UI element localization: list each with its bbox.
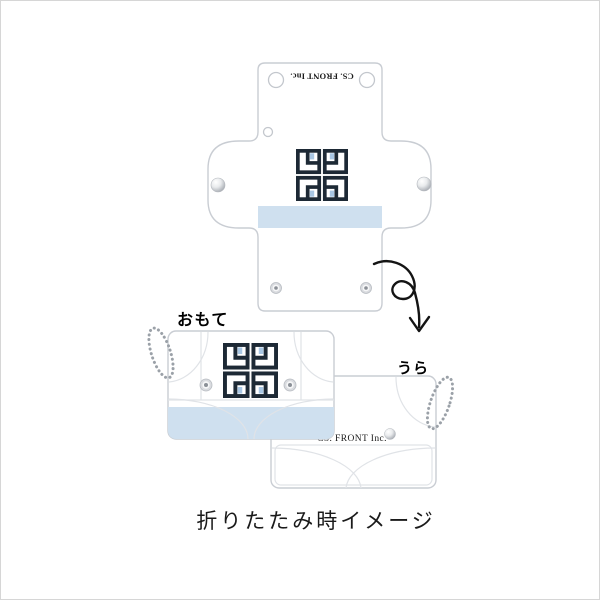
- back-label: うら: [397, 360, 429, 377]
- small-snap-hole: [264, 128, 273, 137]
- back-snap-stud: [385, 429, 396, 440]
- rivet-front-left: [200, 379, 212, 391]
- unfolded-template: CS. FRONT Inc.: [208, 63, 431, 311]
- snap-stud-left: [211, 178, 225, 192]
- front-case: [144, 325, 334, 439]
- front-blue-band: [168, 407, 334, 439]
- punch-hole-right: [360, 73, 375, 88]
- rivet-flap-left: [271, 283, 282, 294]
- punch-hole-left: [269, 73, 284, 88]
- template-blue-band: [258, 206, 382, 228]
- front-label: おもて: [177, 311, 229, 329]
- template-brand-text: CS. FRONT Inc.: [290, 72, 354, 82]
- product-fold-diagram: CS. FRONT Inc. CS. FRONT: [0, 0, 600, 600]
- rivet-flap-right: [361, 283, 372, 294]
- caption-text: 折りたたみ時イメージ: [196, 510, 436, 533]
- snap-stud-right: [417, 177, 431, 191]
- diagram-canvas: CS. FRONT Inc. CS. FRONT: [1, 1, 600, 600]
- rivet-front-right: [284, 379, 296, 391]
